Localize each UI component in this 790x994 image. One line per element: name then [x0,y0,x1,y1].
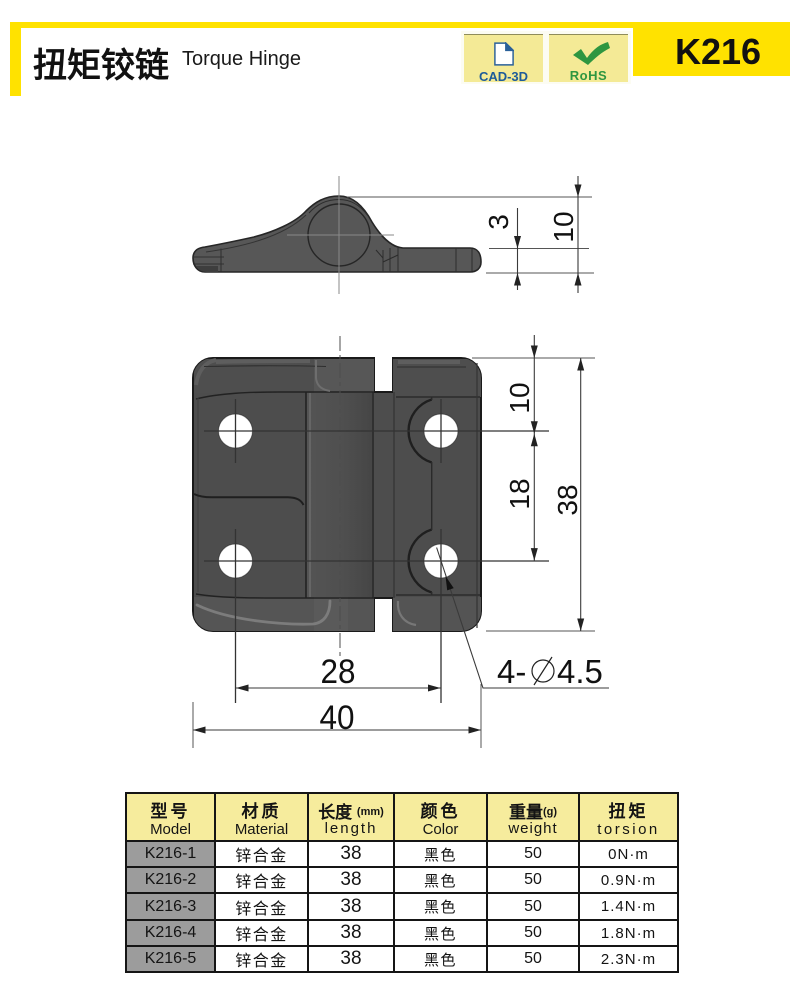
svg-text:38: 38 [552,484,583,515]
svg-text:40: 40 [320,699,355,737]
svg-text:4.5: 4.5 [557,653,603,690]
svg-text:10: 10 [548,211,579,242]
svg-text:28: 28 [321,653,356,691]
svg-text:10: 10 [504,382,535,413]
svg-text:4-: 4- [497,653,526,690]
svg-text:18: 18 [504,478,535,509]
svg-text:3: 3 [483,214,514,230]
